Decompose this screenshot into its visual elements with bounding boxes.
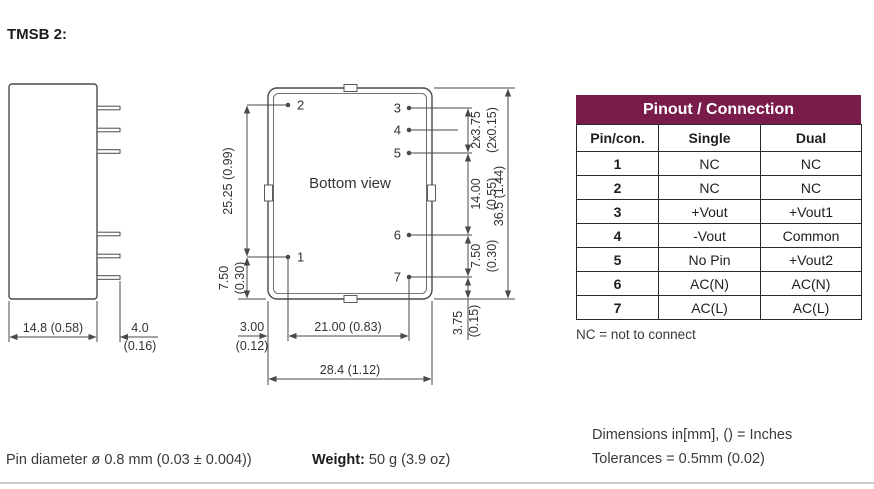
nc-note: NC = not to connect — [576, 327, 861, 342]
dim-right-bottom-in: (0.15) — [467, 305, 481, 338]
table-row: 5 No Pin +Vout2 — [577, 248, 862, 272]
dim-left-span: 25.25 (0.99) — [221, 147, 235, 214]
dim-right-total: 36.5 (1.44) — [492, 166, 506, 226]
side-view: 14.8 (0.58) 4.0 (0.16) — [9, 84, 158, 353]
dimensions-note: Dimensions in[mm], () = Inches — [592, 427, 792, 443]
pin-6-label: 6 — [394, 228, 401, 243]
pinout-table: Pinout / Connection Pin/con. Single Dual… — [576, 95, 861, 342]
bottom-divider — [0, 482, 874, 484]
dim-bottom-left-mm: 3.00 — [240, 320, 264, 334]
dim-left-small-mm: 7.50 — [217, 266, 231, 290]
pin-1-label: 1 — [297, 250, 304, 265]
col-header-dual: Dual — [761, 125, 862, 152]
tolerances-note: Tolerances = 0.5mm (0.02) — [592, 451, 765, 467]
dim-pin-length-mm: 4.0 — [131, 321, 148, 335]
dim-left-small-in: (0.30) — [233, 262, 247, 295]
pin-5-label: 5 — [394, 146, 401, 161]
col-header-single: Single — [659, 125, 761, 152]
dim-right-low-in: (0.30) — [485, 240, 499, 273]
pin-7-label: 7 — [394, 270, 401, 285]
table-row: 4 -Vout Common — [577, 224, 862, 248]
dim-bottom-mid: 21.00 (0.83) — [314, 320, 381, 334]
dim-bottom-total: 28.4 (1.12) — [320, 363, 380, 377]
table-row: 3 +Vout +Vout1 — [577, 200, 862, 224]
table-row: 2 NC NC — [577, 176, 862, 200]
pin-3-label: 3 — [394, 101, 401, 116]
dim-right-top-in: (2x0.15) — [485, 107, 499, 153]
table-row: 1 NC NC — [577, 152, 862, 176]
table-row: 6 AC(N) AC(N) — [577, 272, 862, 296]
pin-diameter-note: Pin diameter ø 0.8 mm (0.03 ± 0.004)) — [6, 452, 252, 468]
dim-right-bottom-mm: 3.75 — [451, 311, 465, 335]
weight-value: 50 g (3.9 oz) — [369, 452, 450, 468]
bottom-view-label: Bottom view — [309, 175, 391, 192]
col-header-pin: Pin/con. — [577, 125, 659, 152]
pinout-grid: Pin/con. Single Dual 1 NC NC 2 NC NC 3 — [576, 124, 862, 320]
dim-right-mid-mm: 14.00 — [469, 178, 483, 209]
bottom-view: Bottom view 2 1 3 4 5 6 7 — [217, 85, 515, 386]
dim-right-low-mm: 7.50 — [469, 244, 483, 268]
dim-pin-length-in: (0.16) — [124, 339, 157, 353]
table-header-row: Pin/con. Single Dual — [577, 125, 862, 152]
dim-side-width: 14.8 (0.58) — [23, 321, 83, 335]
mechanical-drawing: 14.8 (0.58) 4.0 (0.16) Bottom view 2 1 3 — [0, 0, 570, 400]
pin-2-label: 2 — [297, 98, 304, 113]
pinout-table-title: Pinout / Connection — [576, 95, 861, 124]
pin-4-label: 4 — [394, 123, 401, 138]
dim-right-top-mm: 2x3.75 — [469, 111, 483, 149]
weight-note: Weight:50 g (3.9 oz) — [312, 452, 450, 468]
datasheet-page: TMSB 2: 14.8 (0.58) 4.0 (0.16) — [0, 0, 874, 489]
dim-bottom-left-in: (0.12) — [236, 339, 269, 353]
weight-label: Weight: — [312, 452, 365, 468]
table-row: 7 AC(L) AC(L) — [577, 296, 862, 320]
